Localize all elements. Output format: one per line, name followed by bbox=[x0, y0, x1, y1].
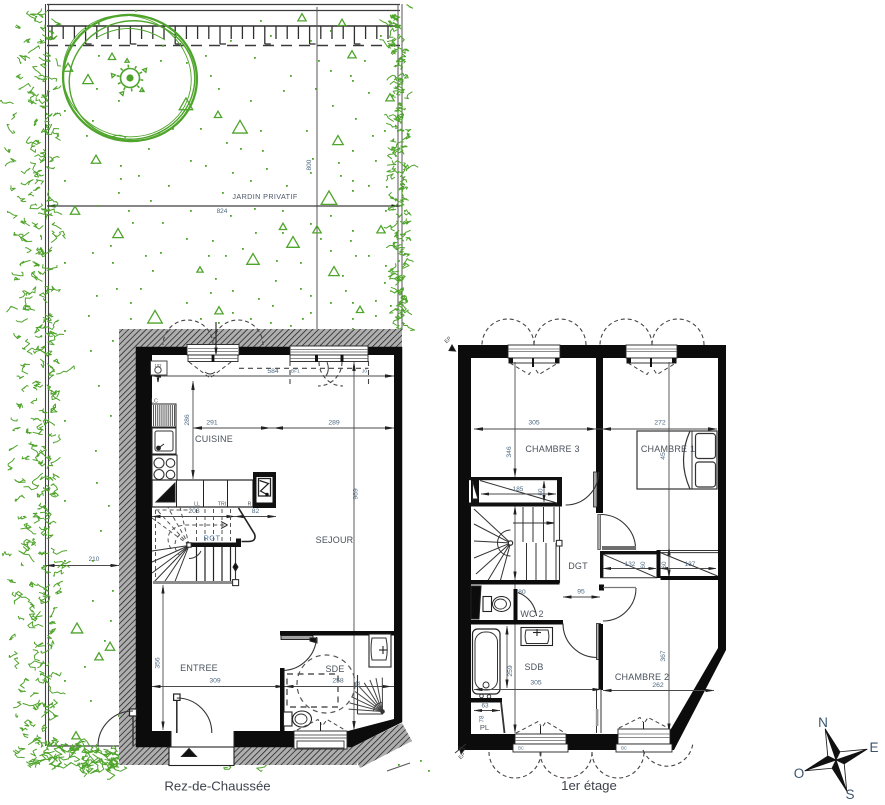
svg-text:BF1: BF1 bbox=[291, 369, 300, 375]
svg-text:289: 289 bbox=[328, 420, 340, 427]
svg-text:62: 62 bbox=[356, 681, 362, 687]
svg-text:291: 291 bbox=[206, 420, 218, 427]
svg-text:346: 346 bbox=[506, 446, 513, 458]
svg-text:E: E bbox=[869, 740, 878, 755]
svg-text:DGT: DGT bbox=[568, 561, 588, 571]
svg-text:305: 305 bbox=[530, 680, 542, 687]
svg-text:309: 309 bbox=[209, 678, 221, 685]
svg-text:PL: PL bbox=[480, 723, 489, 732]
svg-text:102: 102 bbox=[155, 363, 163, 368]
svg-text:60: 60 bbox=[640, 561, 647, 569]
svg-text:262: 262 bbox=[652, 682, 664, 689]
svg-text:CHAMBRE 2: CHAMBRE 2 bbox=[615, 672, 669, 682]
svg-text:137: 137 bbox=[685, 561, 696, 568]
svg-text:O: O bbox=[794, 766, 805, 781]
svg-text:TRI: TRI bbox=[218, 502, 226, 508]
svg-text:S: S bbox=[845, 787, 854, 800]
svg-text:824: 824 bbox=[217, 208, 228, 215]
svg-text:J0: J0 bbox=[362, 369, 367, 375]
svg-text:78: 78 bbox=[479, 715, 486, 723]
svg-text:272: 272 bbox=[654, 420, 666, 427]
svg-text:210: 210 bbox=[89, 556, 100, 563]
svg-text:WC 2: WC 2 bbox=[520, 609, 543, 619]
svg-text:208: 208 bbox=[188, 508, 200, 515]
svg-text:969: 969 bbox=[353, 488, 360, 500]
svg-text:286: 286 bbox=[184, 414, 191, 426]
svg-text:185: 185 bbox=[513, 486, 524, 493]
svg-text:356: 356 bbox=[155, 657, 162, 669]
svg-text:60: 60 bbox=[661, 561, 668, 569]
svg-text:BC: BC bbox=[621, 746, 627, 751]
svg-text:63: 63 bbox=[481, 703, 489, 710]
svg-text:SDE: SDE bbox=[325, 664, 344, 674]
svg-text:BC: BC bbox=[518, 746, 524, 751]
svg-text:1er étage: 1er étage bbox=[561, 778, 617, 793]
svg-text:ENTREE: ENTREE bbox=[180, 663, 218, 673]
svg-text:SEJOUR: SEJOUR bbox=[316, 535, 354, 545]
svg-text:95: 95 bbox=[577, 589, 585, 596]
svg-text:N: N bbox=[818, 715, 828, 730]
svg-text:CUISINE: CUISINE bbox=[195, 434, 233, 444]
svg-text:45: 45 bbox=[660, 452, 667, 460]
svg-text:SDB: SDB bbox=[524, 662, 543, 672]
svg-text:CHAMBRE 1: CHAMBRE 1 bbox=[641, 444, 695, 454]
svg-text:367: 367 bbox=[660, 650, 667, 662]
svg-text:132: 132 bbox=[625, 561, 636, 568]
svg-text:800: 800 bbox=[306, 159, 313, 170]
svg-text:CHAMBRE 3: CHAMBRE 3 bbox=[525, 444, 579, 454]
svg-text:JARDIN PRIVATIF: JARDIN PRIVATIF bbox=[232, 192, 297, 201]
svg-text:60: 60 bbox=[538, 488, 545, 496]
svg-text:RGT: RGT bbox=[203, 534, 220, 543]
svg-text:259: 259 bbox=[507, 665, 514, 677]
svg-text:R: R bbox=[248, 502, 252, 508]
svg-text:LL: LL bbox=[194, 502, 200, 508]
svg-text:Rez-de-Chaussée: Rez-de-Chaussée bbox=[164, 779, 270, 794]
svg-text:305: 305 bbox=[528, 420, 540, 427]
svg-text:82: 82 bbox=[252, 508, 260, 515]
svg-text:584: 584 bbox=[267, 368, 279, 375]
